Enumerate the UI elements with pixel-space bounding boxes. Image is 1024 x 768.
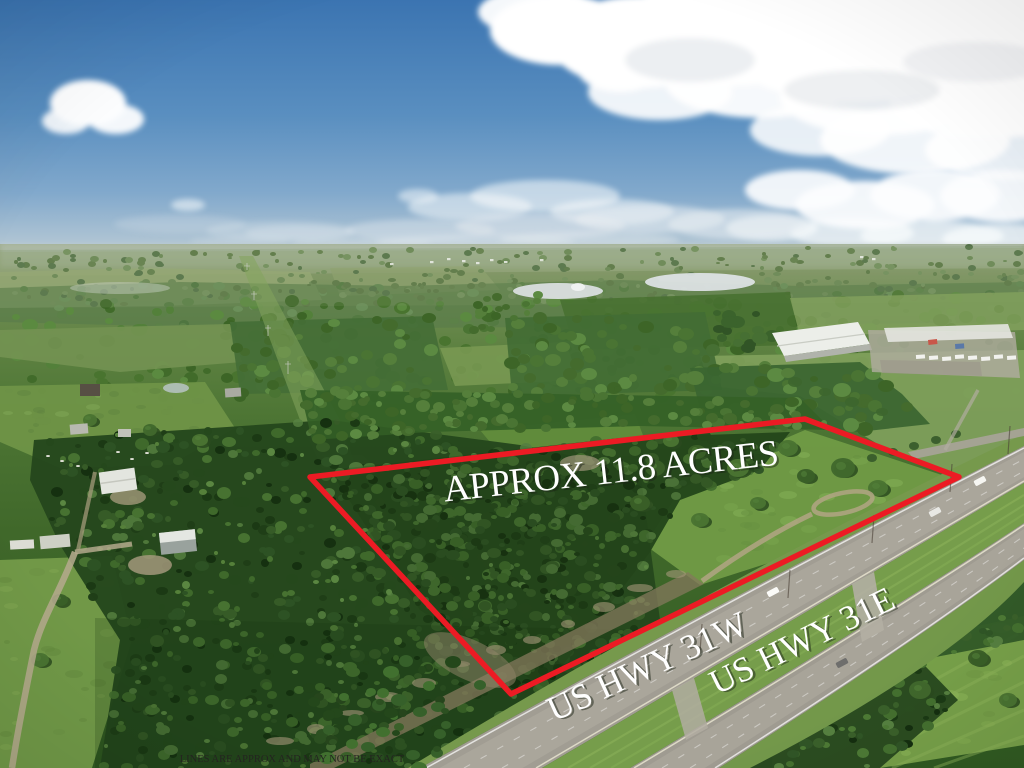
- svg-text:LINES ARE APPROX AND MAY NOT B: LINES ARE APPROX AND MAY NOT BE EXACT: [180, 754, 405, 765]
